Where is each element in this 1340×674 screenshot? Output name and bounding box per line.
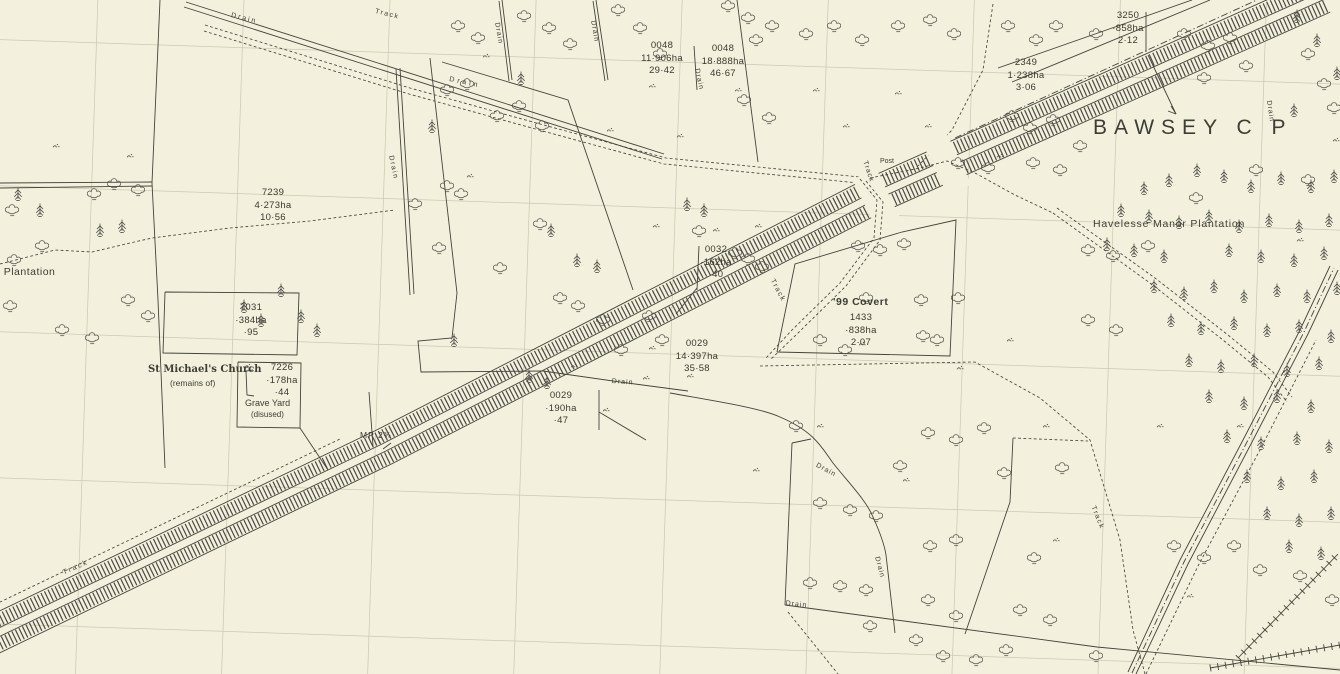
conifer-tree-icon — [257, 313, 265, 326]
boundary-left-top-a — [0, 182, 152, 183]
conifer-tree-icon — [1273, 389, 1281, 402]
deciduous-tree-icon — [7, 255, 21, 266]
deciduous-tree-icon — [923, 15, 937, 26]
scrub-tree-icon — [1043, 424, 1049, 427]
scrub-tree-icon — [603, 408, 609, 411]
conifer-tree-icon — [14, 187, 22, 200]
grid-lines — [0, 0, 1340, 674]
deciduous-tree-icon — [1073, 141, 1087, 152]
deciduous-tree-icon — [749, 35, 763, 46]
drain-small-2a — [596, 0, 608, 80]
conifer-tree-icon — [1295, 219, 1303, 232]
conifer-tree-icon — [1247, 179, 1255, 192]
conifer-tree-icon — [1330, 169, 1338, 182]
deciduous-tree-icon — [490, 111, 504, 122]
se-boundary-west-link — [792, 439, 811, 443]
conifer-tree-icon — [1243, 469, 1251, 482]
conifer-tree-icon — [1277, 476, 1285, 489]
deciduous-tree-icon — [1053, 165, 1067, 176]
scrub-tree-icon — [859, 342, 865, 345]
deciduous-tree-icon — [1029, 35, 1043, 46]
conifer-tree-icon — [1333, 66, 1340, 79]
scrub-tree-icon — [643, 376, 649, 379]
deciduous-tree-icon — [1293, 571, 1307, 582]
deciduous-tree-icon — [893, 461, 907, 472]
deciduous-tree-icon — [1027, 553, 1041, 564]
scrub-tree-icon — [649, 346, 655, 349]
grid-line-h — [0, 621, 1340, 671]
deciduous-tree-icon — [107, 179, 121, 190]
conifer-tree-icon — [1230, 316, 1238, 329]
conifer-tree-icon — [1205, 209, 1213, 222]
conifer-tree-icon — [118, 219, 126, 232]
deciduous-tree-icon — [1141, 241, 1155, 252]
deciduous-tree-icon — [451, 21, 465, 32]
conifer-tree-icon — [1313, 33, 1321, 46]
boundary-north-5 — [737, 0, 758, 162]
conifer-tree-icon — [1315, 356, 1323, 369]
lane-ne-a — [998, 0, 1192, 68]
conifer-tree-icon — [1240, 396, 1248, 409]
deciduous-tree-icon — [803, 578, 817, 589]
conifer-tree-icon — [1217, 359, 1225, 372]
scrub-tree-icon — [677, 134, 683, 137]
deciduous-tree-icon — [563, 39, 577, 50]
grid-line-v — [948, 0, 977, 674]
railway-embankment — [0, 0, 1324, 655]
deciduous-tree-icon — [762, 113, 776, 124]
conifer-tree-icon — [1320, 246, 1328, 259]
map-linework — [0, 0, 1340, 674]
field-boundary-1 — [442, 62, 633, 290]
conifer-tree-icon — [1240, 289, 1248, 302]
conifer-tree-icon — [36, 203, 44, 216]
deciduous-tree-icon — [1109, 325, 1123, 336]
scrub-tree-icon — [607, 128, 613, 131]
scrub-tree-icon — [687, 374, 693, 377]
conifer-tree-icon — [1250, 353, 1258, 366]
deciduous-tree-icon — [454, 189, 468, 200]
conifer-tree-icon — [1150, 279, 1158, 292]
deciduous-tree-icon — [633, 23, 647, 34]
se-boundary-long — [785, 605, 1340, 670]
parish-boundary — [955, 0, 1340, 138]
deciduous-tree-icon — [542, 23, 556, 34]
conifer-tree-icon — [1165, 173, 1173, 186]
grave-yard-to-rail — [300, 428, 328, 470]
lane-east-b — [1136, 270, 1338, 674]
drain-vertical-b — [396, 69, 410, 295]
leader-7226-bracket — [246, 370, 254, 396]
deciduous-tree-icon — [1026, 158, 1040, 169]
conifer-tree-icon — [1205, 389, 1213, 402]
conifer-tree-icon — [1263, 506, 1271, 519]
parcel-7031-box — [163, 292, 299, 355]
deciduous-tree-icon — [1227, 541, 1241, 552]
drain-mid — [543, 371, 688, 391]
conifer-tree-icon — [1185, 353, 1193, 366]
track-north-a — [205, 25, 870, 178]
se-dashed-corner — [788, 612, 838, 674]
deciduous-tree-icon — [1081, 315, 1095, 326]
deciduous-tree-icon — [1081, 245, 1095, 256]
tree-symbols — [3, 1, 1340, 666]
deciduous-tree-icon — [721, 1, 735, 12]
deciduous-tree-icon — [655, 335, 669, 346]
deciduous-tree-icon — [977, 423, 991, 434]
deciduous-tree-icon — [949, 435, 963, 446]
conifer-tree-icon — [1167, 313, 1175, 326]
grid-line-v — [219, 0, 248, 674]
conifer-tree-icon — [1117, 203, 1125, 216]
conifer-tree-icon — [1285, 539, 1293, 552]
conifer-tree-icon — [1193, 163, 1201, 176]
grid-line-h — [0, 183, 1340, 233]
conifer-tree-icon — [1263, 323, 1271, 336]
conifer-tree-icon — [1103, 237, 1111, 250]
conifer-tree-icon — [1265, 213, 1273, 226]
scrub-tree-icon — [649, 84, 655, 87]
deciduous-tree-icon — [1043, 615, 1057, 626]
conifer-tree-icon — [1333, 281, 1340, 294]
deciduous-tree-icon — [35, 241, 49, 252]
conifer-tree-icon — [1175, 215, 1183, 228]
boundary-mp — [369, 392, 373, 446]
scrub-tree-icon — [1333, 138, 1339, 141]
deciduous-tree-icon — [493, 263, 507, 274]
deciduous-tree-icon — [813, 498, 827, 509]
deciduous-tree-icon — [947, 29, 961, 40]
se-drain-vertical — [886, 555, 895, 633]
conifer-tree-icon — [1317, 546, 1325, 559]
track-along-railway-sw — [0, 439, 340, 627]
deciduous-tree-icon — [981, 163, 995, 174]
drain-small-2b — [593, 1, 605, 81]
deciduous-tree-icon — [1301, 49, 1315, 60]
conifer-tree-icon — [313, 323, 321, 336]
deciduous-tree-icon — [3, 301, 17, 312]
deciduous-tree-icon — [460, 79, 474, 90]
scrub-tree-icon — [755, 224, 761, 227]
conifer-tree-icon — [543, 375, 551, 388]
scrub-tree-icon — [653, 224, 659, 227]
se-boundary-link — [1013, 438, 1088, 441]
drain-north-b — [184, 7, 662, 159]
leader-0029-arrow — [599, 412, 646, 440]
conifer-tree-icon — [700, 203, 708, 216]
deciduous-tree-icon — [855, 35, 869, 46]
scrub-tree-icon — [713, 228, 719, 231]
deciduous-tree-icon — [833, 581, 847, 592]
lane-east-a — [1128, 266, 1330, 672]
deciduous-tree-icon — [813, 335, 827, 346]
deciduous-tree-icon — [692, 226, 706, 237]
conifer-tree-icon — [1235, 219, 1243, 232]
deciduous-tree-icon — [1049, 21, 1063, 32]
deciduous-tree-icon — [859, 293, 873, 304]
deciduous-tree-icon — [741, 13, 755, 24]
conifer-tree-icon — [1160, 249, 1168, 262]
scrub-tree-icon — [1157, 424, 1163, 427]
deciduous-tree-icon — [914, 295, 928, 306]
conifer-tree-icon — [1303, 289, 1311, 302]
scrub-tree-icon — [903, 478, 909, 481]
deciduous-tree-icon — [1253, 565, 1267, 576]
mp-tick — [383, 443, 391, 449]
scrub-tree-icon — [895, 91, 901, 94]
deciduous-tree-icon — [859, 585, 873, 596]
grid-line-h — [0, 37, 1340, 87]
grid-line-v — [657, 0, 686, 674]
scrub-tree-icon — [53, 144, 59, 147]
scrub-tree-icon — [467, 174, 473, 177]
conifer-tree-icon — [1180, 286, 1188, 299]
deciduous-tree-icon — [951, 293, 965, 304]
conifer-tree-icon — [1223, 429, 1231, 442]
lane-east-side — [1146, 340, 1316, 674]
deciduous-tree-icon — [432, 243, 446, 254]
grid-line-v — [1240, 0, 1269, 674]
conifer-tree-icon — [1290, 253, 1298, 266]
scrub-tree-icon — [245, 364, 251, 367]
deciduous-tree-icon — [440, 181, 454, 192]
deciduous-tree-icon — [921, 595, 935, 606]
grid-line-v — [511, 0, 540, 674]
deciduous-tree-icon — [891, 21, 905, 32]
scrub-tree-icon — [957, 366, 963, 369]
conifer-tree-icon — [1220, 169, 1228, 182]
scrub-tree-icon — [127, 154, 133, 157]
deciduous-tree-icon — [1317, 79, 1331, 90]
scrub-tree-icon — [1053, 538, 1059, 541]
drain-north-a — [186, 2, 664, 154]
conifer-tree-icon — [1210, 279, 1218, 292]
deciduous-tree-icon — [1167, 541, 1181, 552]
covert-track-west-b — [770, 181, 883, 360]
railway-embankment — [0, 12, 1330, 668]
deciduous-tree-icon — [1055, 463, 1069, 474]
conifer-tree-icon — [1197, 321, 1205, 334]
label-divider-0048 — [694, 46, 697, 90]
scrub-tree-icon — [753, 468, 759, 471]
conifer-tree-icon — [1130, 243, 1138, 256]
conifer-tree-icon — [1257, 436, 1265, 449]
deciduous-tree-icon — [5, 205, 19, 216]
scrub-tree-icon — [843, 124, 849, 127]
conifer-tree-icon — [1307, 399, 1315, 412]
deciduous-tree-icon — [1239, 61, 1253, 72]
deciduous-tree-icon — [799, 29, 813, 40]
deciduous-tree-icon — [1325, 595, 1339, 606]
conifer-tree-icon — [1145, 209, 1153, 222]
boundary-left-vertical — [152, 0, 165, 468]
deciduous-tree-icon — [1013, 605, 1027, 616]
deciduous-tree-icon — [897, 239, 911, 250]
deciduous-tree-icon — [1001, 21, 1015, 32]
track-north-b — [204, 31, 869, 184]
conifer-tree-icon — [1273, 283, 1281, 296]
covert-boundary — [777, 220, 956, 356]
deciduous-tree-icon — [553, 293, 567, 304]
deciduous-tree-icon — [1327, 103, 1340, 114]
conifer-tree-icon — [240, 299, 248, 312]
scrub-tree-icon — [735, 88, 741, 91]
conifer-tree-icon — [1225, 243, 1233, 256]
conifer-tree-icon — [450, 333, 458, 346]
scrub-tree-icon — [925, 124, 931, 127]
railway-line — [0, 0, 1330, 668]
deciduous-tree-icon — [571, 301, 585, 312]
deciduous-tree-icon — [141, 311, 155, 322]
conifer-tree-icon — [1295, 513, 1303, 526]
deciduous-tree-icon — [1089, 29, 1103, 40]
track-west-meander — [0, 210, 395, 264]
deciduous-tree-icon — [923, 541, 937, 552]
conifer-tree-icon — [1293, 431, 1301, 444]
deciduous-tree-icon — [517, 11, 531, 22]
deciduous-tree-icon — [999, 645, 1013, 656]
conifer-tree-icon — [96, 223, 104, 236]
deciduous-tree-icon — [121, 295, 135, 306]
fence-se-2 — [1210, 645, 1340, 668]
deciduous-tree-icon — [87, 189, 101, 200]
conifer-tree-icon — [517, 71, 525, 84]
deciduous-tree-icon — [921, 428, 935, 439]
scrub-tree-icon — [813, 88, 819, 91]
deciduous-tree-icon — [930, 335, 944, 346]
se-boundary-west — [785, 443, 792, 605]
conifer-tree-icon — [1325, 439, 1333, 452]
scrub-tree-icon — [1237, 424, 1243, 427]
deciduous-tree-icon — [1197, 73, 1211, 84]
conifer-tree-icon — [1310, 469, 1318, 482]
deciduous-tree-icon — [471, 33, 485, 44]
grid-line-h — [0, 475, 1340, 525]
deciduous-tree-icon — [737, 95, 751, 106]
deciduous-tree-icon — [1189, 193, 1203, 204]
deciduous-tree-icon — [653, 49, 667, 60]
se-stream — [670, 393, 886, 555]
scrub-tree-icon — [1187, 594, 1193, 597]
deciduous-tree-icon — [863, 621, 877, 632]
deciduous-tree-icon — [997, 468, 1011, 479]
field-boundary-2 — [418, 58, 543, 372]
deciduous-tree-icon — [909, 635, 923, 646]
conifer-tree-icon — [277, 283, 285, 296]
deciduous-tree-icon — [1197, 553, 1211, 564]
deciduous-tree-icon — [611, 5, 625, 16]
scrub-tree-icon — [1297, 238, 1303, 241]
scrub-tree-icon — [1007, 338, 1013, 341]
conifer-tree-icon — [1290, 103, 1298, 116]
deciduous-tree-icon — [827, 21, 841, 32]
scrub-tree-icon — [817, 424, 823, 427]
deciduous-tree-icon — [533, 219, 547, 230]
se-boundary-up — [965, 438, 1013, 634]
conifer-tree-icon — [1325, 213, 1333, 226]
conifer-tree-icon — [547, 223, 555, 236]
deciduous-tree-icon — [936, 651, 950, 662]
drain-vertical-a — [400, 68, 414, 294]
deciduous-tree-icon — [949, 611, 963, 622]
deciduous-tree-icon — [916, 331, 930, 342]
os-map-sheet: BAWSEY C PHavelesse Manor PlantationChap… — [0, 0, 1340, 674]
leader-3250-arrow — [1148, 55, 1176, 114]
conifer-tree-icon — [1327, 506, 1335, 519]
conifer-tree-icon — [428, 119, 436, 132]
lane-east-center — [1132, 268, 1334, 673]
deciduous-tree-icon — [765, 21, 779, 32]
conifer-tree-icon — [1140, 181, 1148, 194]
conifer-tree-icon — [573, 253, 581, 266]
grid-line-v — [365, 0, 394, 674]
conifer-tree-icon — [593, 259, 601, 272]
conifer-tree-icon — [1277, 171, 1285, 184]
conifer-tree-icon — [1327, 329, 1335, 342]
deciduous-tree-icon — [408, 199, 422, 210]
deciduous-tree-icon — [85, 333, 99, 344]
